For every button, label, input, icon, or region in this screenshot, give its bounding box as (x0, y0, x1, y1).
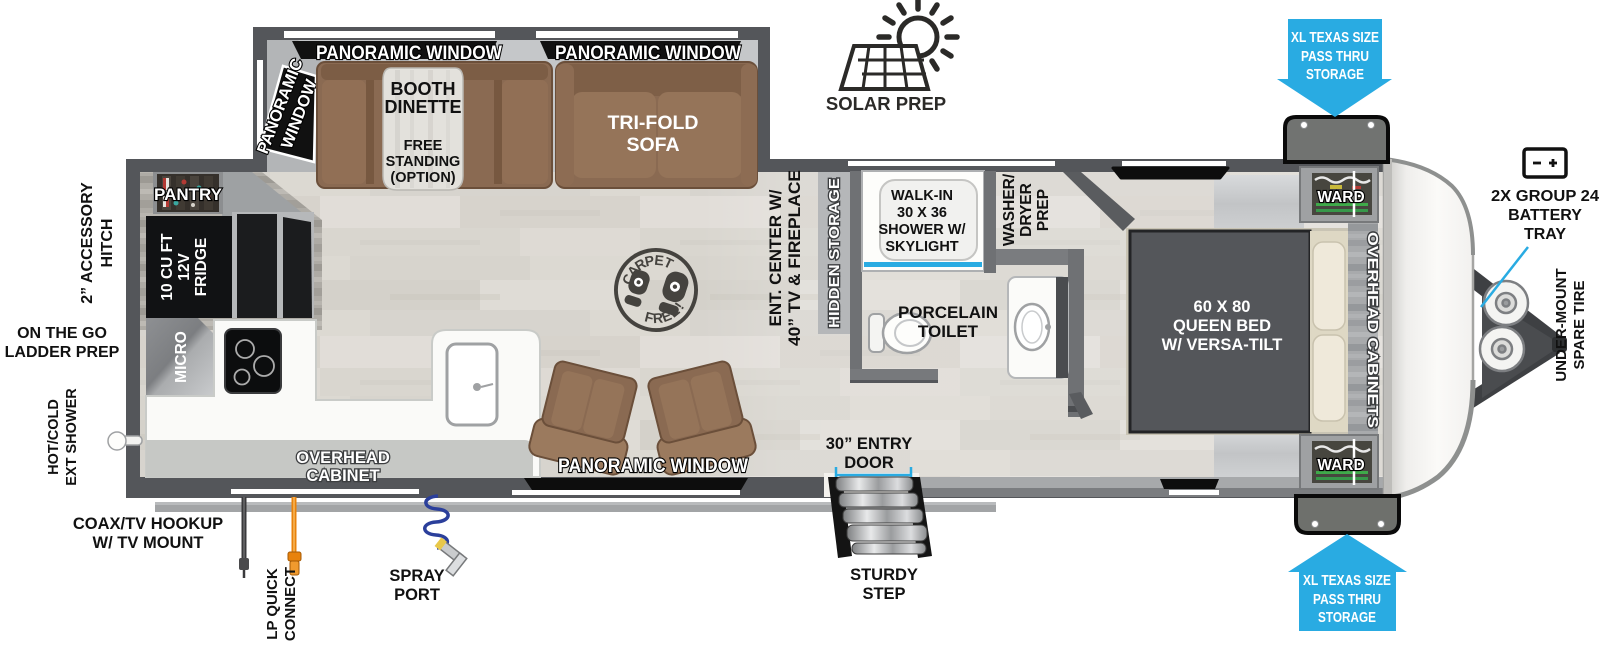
svg-text:LP QUICK: LP QUICK (264, 568, 281, 640)
svg-text:OVERHEAD CABINETS: OVERHEAD CABINETS (1364, 232, 1380, 428)
svg-text:TRI-FOLD: TRI-FOLD (608, 112, 699, 134)
svg-text:PANORAMIC WINDOW: PANORAMIC WINDOW (555, 43, 741, 64)
svg-text:HITCH: HITCH (99, 219, 116, 268)
svg-text:TOILET: TOILET (918, 322, 979, 341)
svg-text:PASS THRU: PASS THRU (1313, 591, 1381, 608)
svg-text:STURDY: STURDY (850, 566, 918, 584)
svg-text:2” ACCESSORY: 2” ACCESSORY (79, 182, 96, 304)
svg-text:ENT. CENTER W/: ENT. CENTER W/ (766, 189, 785, 326)
svg-text:MICRO: MICRO (173, 331, 190, 383)
svg-text:WARD: WARD (1317, 457, 1364, 474)
svg-text:SHOWER W/: SHOWER W/ (879, 222, 966, 238)
svg-text:30” ENTRY: 30” ENTRY (826, 435, 913, 453)
svg-text:HOT/COLD: HOT/COLD (46, 399, 62, 475)
svg-text:PORCELAIN: PORCELAIN (898, 303, 998, 322)
svg-text:COAX/TV HOOKUP: COAX/TV HOOKUP (73, 515, 223, 533)
svg-text:SPRAY: SPRAY (389, 567, 444, 585)
svg-text:XL TEXAS SIZE: XL TEXAS SIZE (1291, 29, 1379, 46)
svg-text:QUEEN BED: QUEEN BED (1173, 317, 1271, 335)
svg-text:STANDING: STANDING (386, 154, 461, 170)
svg-text:W/ VERSA-TILT: W/ VERSA-TILT (1162, 336, 1283, 354)
svg-text:UNDER-MOUNT: UNDER-MOUNT (1553, 268, 1570, 381)
svg-text:HIDDEN STORAGE: HIDDEN STORAGE (826, 178, 843, 328)
svg-text:WASHER/: WASHER/ (1001, 173, 1018, 246)
svg-text:12V: 12V (176, 253, 193, 281)
svg-text:OVERHEAD: OVERHEAD (296, 449, 390, 467)
svg-text:DINETTE: DINETTE (384, 97, 461, 117)
svg-text:CONNECT: CONNECT (282, 567, 299, 641)
svg-text:60 X 80: 60 X 80 (1194, 298, 1251, 316)
svg-text:XL TEXAS SIZE: XL TEXAS SIZE (1303, 572, 1391, 589)
svg-text:STEP: STEP (862, 585, 905, 603)
svg-text:EXT SHOWER: EXT SHOWER (64, 388, 80, 486)
svg-text:PREP: PREP (1035, 189, 1052, 231)
svg-text:BATTERY: BATTERY (1508, 207, 1582, 224)
svg-text:SKYLIGHT: SKYLIGHT (885, 239, 958, 255)
svg-text:SOLAR PREP: SOLAR PREP (826, 93, 946, 114)
svg-text:BOOTH: BOOTH (391, 79, 456, 99)
svg-text:PORT: PORT (394, 586, 440, 604)
svg-text:WALK-IN: WALK-IN (891, 188, 953, 204)
svg-text:SPARE TIRE: SPARE TIRE (1571, 281, 1588, 370)
svg-text:W/ TV MOUNT: W/ TV MOUNT (93, 534, 204, 552)
svg-text:PANORAMIC WINDOW: PANORAMIC WINDOW (558, 456, 748, 477)
svg-text:DRYER: DRYER (1018, 183, 1035, 237)
svg-text:TRAY: TRAY (1524, 226, 1566, 243)
svg-text:STORAGE: STORAGE (1306, 66, 1364, 83)
svg-text:FREE: FREE (404, 138, 443, 154)
svg-text:LADDER PREP: LADDER PREP (5, 344, 120, 361)
svg-text:SOFA: SOFA (626, 134, 679, 156)
svg-text:DOOR: DOOR (844, 454, 894, 472)
svg-text:40” TV & FIREPLACE: 40” TV & FIREPLACE (785, 170, 804, 346)
svg-text:30 X 36: 30 X 36 (897, 205, 947, 221)
svg-text:2X GROUP 24: 2X GROUP 24 (1491, 188, 1599, 205)
svg-text:ON THE GO: ON THE GO (17, 325, 107, 342)
svg-text:(OPTION): (OPTION) (390, 170, 455, 186)
svg-text:10 CU FT: 10 CU FT (159, 233, 176, 301)
svg-text:PANTRY: PANTRY (154, 185, 223, 204)
svg-text:FRIDGE: FRIDGE (193, 238, 210, 297)
svg-text:STORAGE: STORAGE (1318, 609, 1376, 626)
svg-text:PANORAMIC WINDOW: PANORAMIC WINDOW (316, 43, 502, 64)
svg-text:CABINET: CABINET (306, 467, 379, 485)
svg-text:WARD: WARD (1317, 189, 1364, 206)
svg-text:PASS THRU: PASS THRU (1301, 48, 1369, 65)
